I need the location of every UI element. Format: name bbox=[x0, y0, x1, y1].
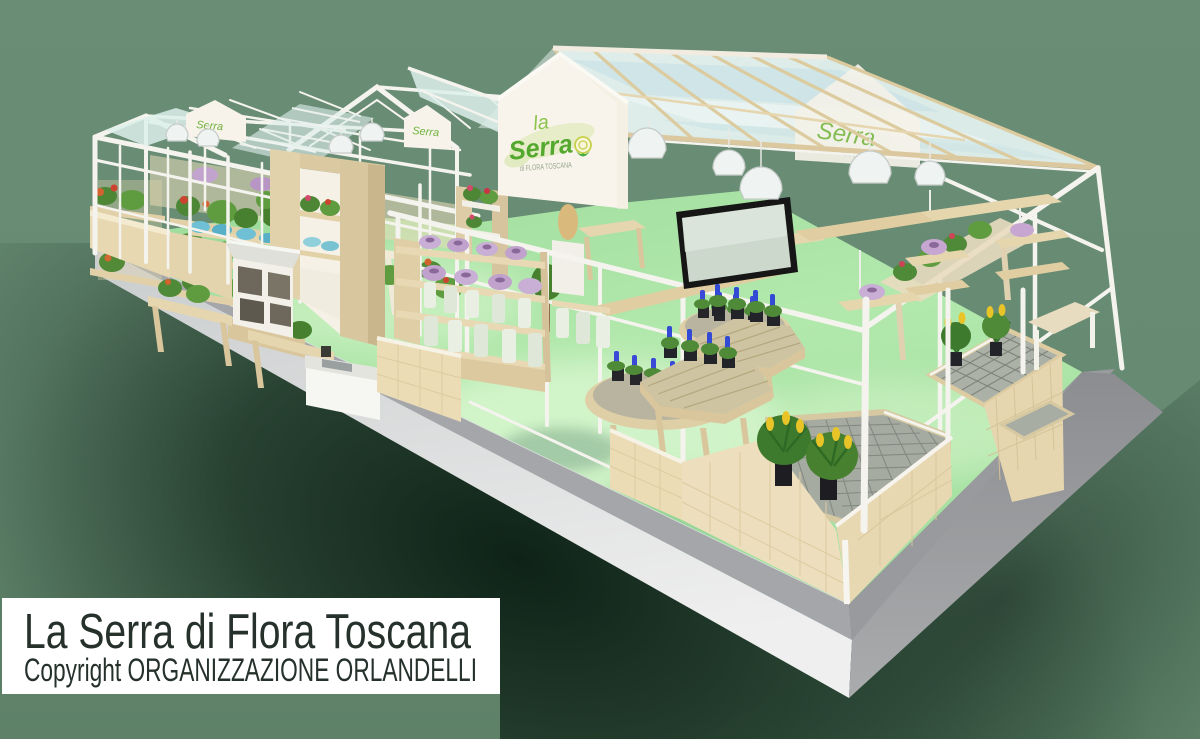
svg-text:Serra: Serra bbox=[412, 125, 440, 139]
svg-text:Copyright ORGANIZZAZIONE ORLAN: Copyright ORGANIZZAZIONE ORLANDELLI bbox=[24, 652, 477, 688]
svg-text:La Serra di Flora Toscana: La Serra di Flora Toscana bbox=[24, 605, 472, 659]
